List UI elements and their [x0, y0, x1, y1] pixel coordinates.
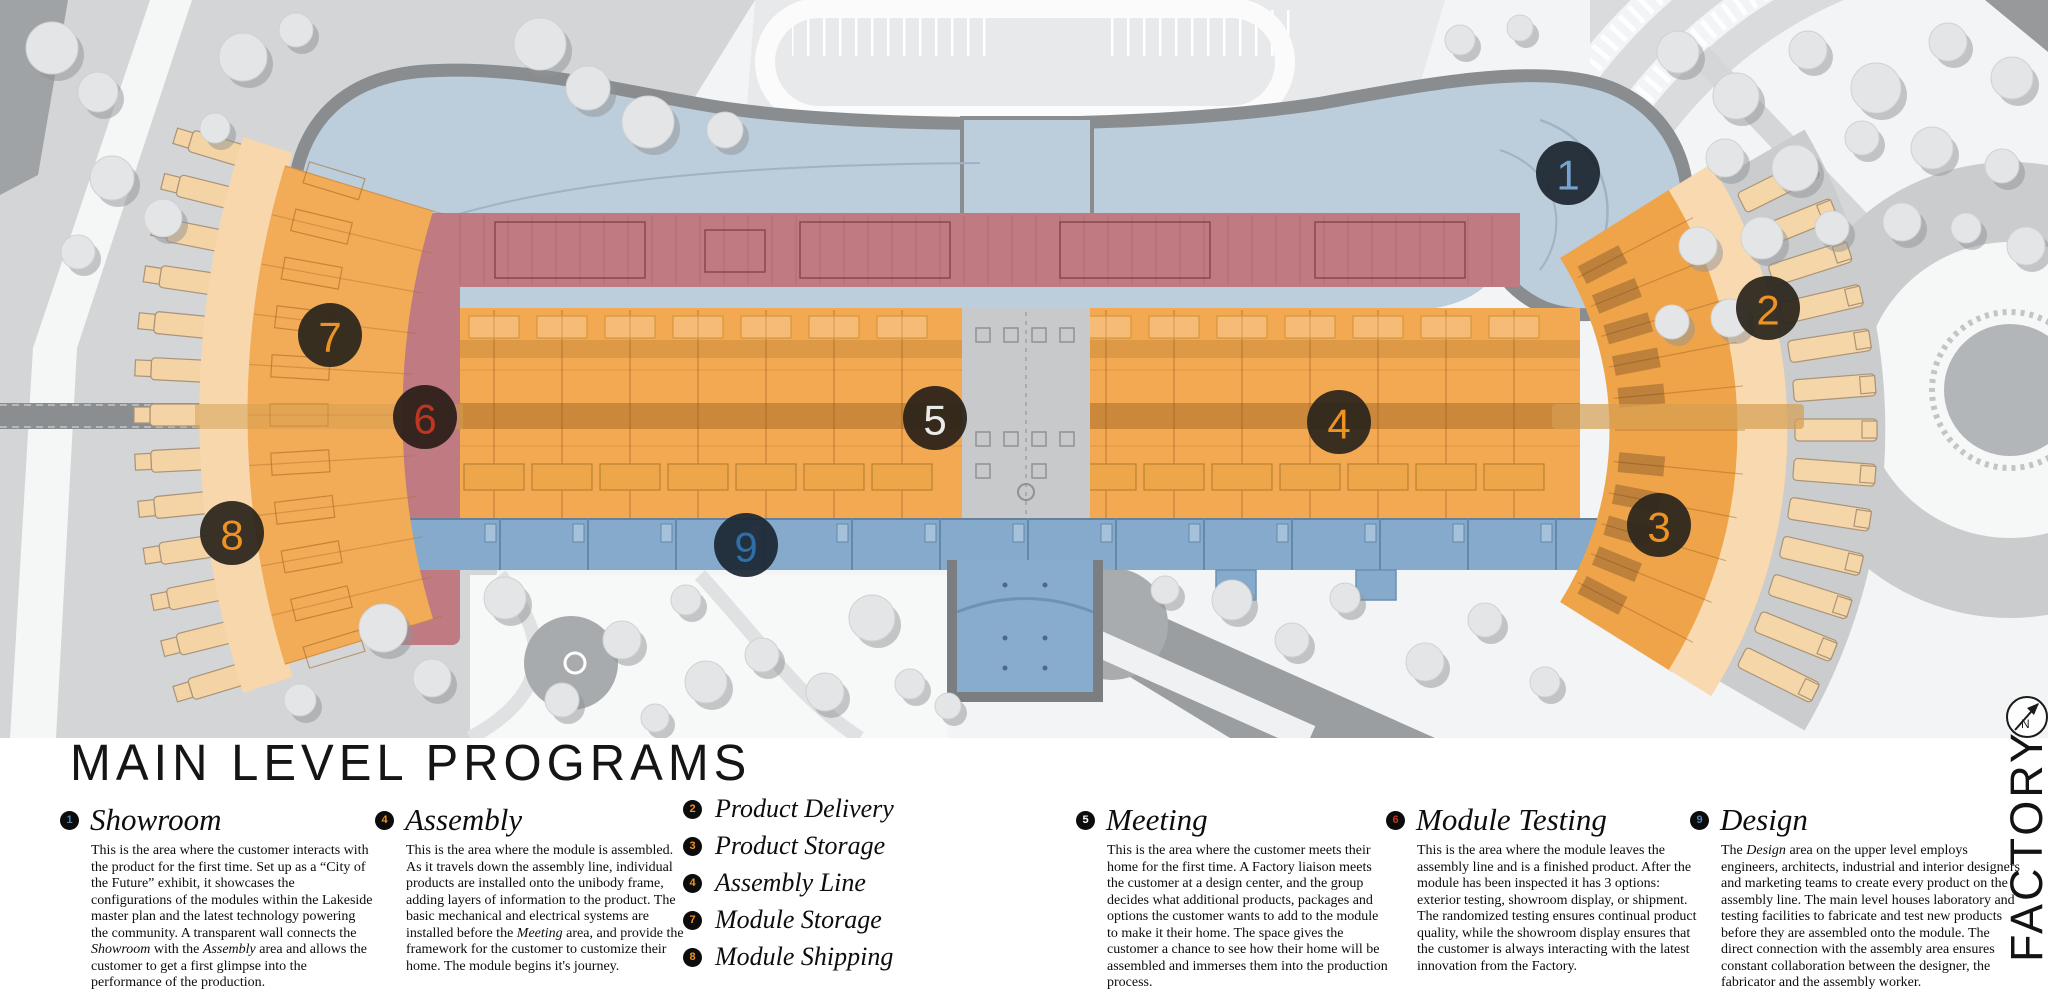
- legend-num-6: 6: [1386, 811, 1405, 830]
- svg-text:5: 5: [923, 397, 946, 444]
- list-item: 8 Module Shipping: [683, 942, 894, 972]
- north-arrow-icon: N: [2004, 694, 2048, 740]
- legend-heading: Module Testing: [1416, 802, 1607, 838]
- svg-text:4: 4: [1327, 401, 1350, 448]
- site-plan: 123456789: [0, 0, 2048, 738]
- map-marker-1: 1: [1536, 141, 1600, 205]
- legend-section-design: 9 Design The Design area on the upper le…: [1690, 802, 2021, 992]
- svg-text:1: 1: [1556, 152, 1579, 199]
- legend-body: This is the area where the customer inte…: [91, 843, 374, 992]
- svg-text:2: 2: [1756, 287, 1779, 334]
- svg-text:3: 3: [1647, 504, 1670, 551]
- map-marker-8: 8: [200, 501, 264, 565]
- list-item: 3 Product Storage: [683, 831, 894, 861]
- list-item: 4 Assembly Line: [683, 868, 894, 898]
- legend-heading: Assembly: [405, 802, 522, 838]
- legend-heading: Meeting: [1106, 802, 1208, 838]
- legend-heading: Showroom: [90, 802, 221, 838]
- legend-body: This is the area where the module is ass…: [406, 843, 689, 975]
- svg-text:N: N: [2021, 717, 2030, 731]
- showroom-entry: [962, 118, 1092, 218]
- legend-heading: Design: [1720, 802, 1808, 838]
- south-stem: [957, 560, 1093, 692]
- poster-page: { "title": "MAIN LEVEL PROGRAMS", "verti…: [0, 0, 2048, 965]
- map-marker-9: 9: [714, 513, 778, 577]
- legend-num-9: 9: [1690, 811, 1709, 830]
- legend-section-assembly: 4 Assembly This is the area where the mo…: [375, 802, 689, 975]
- map-marker-3: 3: [1627, 493, 1691, 557]
- map-marker-2: 2: [1736, 276, 1800, 340]
- map-marker-6: 6: [393, 385, 457, 449]
- legend-num-4: 4: [375, 811, 394, 830]
- legend-num-1: 1: [60, 811, 79, 830]
- svg-text:9: 9: [734, 524, 757, 571]
- legend-section-module-testing: 6 Module Testing This is the area where …: [1386, 802, 1700, 975]
- svg-text:7: 7: [318, 314, 341, 361]
- legend-section-meeting: 5 Meeting This is the area where the cus…: [1076, 802, 1390, 992]
- map-marker-5: 5: [903, 386, 967, 450]
- legend-section-showroom: 1 Showroom This is the area where the cu…: [60, 802, 374, 992]
- module-testing-band: [390, 213, 1520, 287]
- list-item: 7 Module Storage: [683, 905, 894, 935]
- map-marker-7: 7: [298, 303, 362, 367]
- legend-panel: MAIN LEVEL PROGRAMS 1 Showroom This is t…: [0, 738, 2048, 965]
- list-item: 2 Product Delivery: [683, 794, 894, 824]
- legend-body: This is the area where the module leaves…: [1417, 843, 1700, 975]
- map-marker-4: 4: [1307, 390, 1371, 454]
- legend-list: 2 Product Delivery 3 Product Storage 4 A…: [683, 794, 894, 979]
- svg-text:6: 6: [413, 396, 436, 443]
- factory-vertical-label: FACTORY: [2001, 730, 2047, 962]
- page-title: MAIN LEVEL PROGRAMS: [70, 734, 751, 793]
- legend-body: This is the area where the customer meet…: [1107, 843, 1390, 992]
- legend-body: The Design area on the upper level emplo…: [1721, 843, 2021, 992]
- svg-text:8: 8: [220, 512, 243, 559]
- legend-num-5: 5: [1076, 811, 1095, 830]
